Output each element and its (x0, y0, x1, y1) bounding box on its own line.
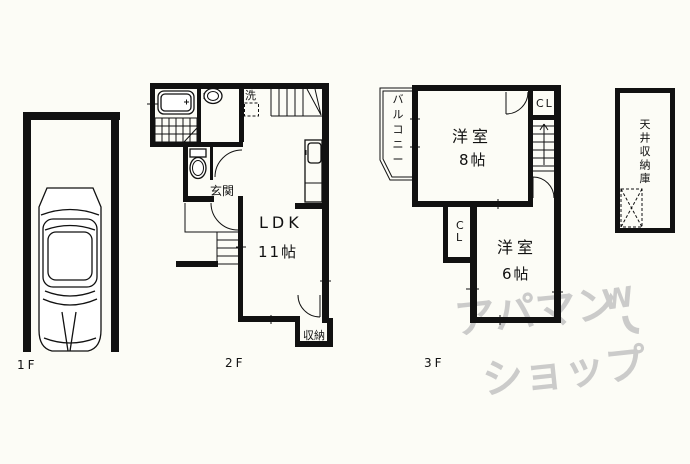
floorplan-image: アパマン ショップ W 1F (0, 0, 690, 460)
watermark-logo-tail (625, 316, 639, 331)
floorplan-svg: アパマン ショップ W 1F (0, 0, 690, 460)
door-arc-room6 (533, 177, 554, 198)
watermark-line2: ショップ (480, 339, 648, 404)
watermark-logo-icon: W (600, 280, 635, 317)
stairs-icon-3f (533, 124, 554, 171)
room6-label: 洋室 (497, 238, 537, 257)
room8-label: 洋室 (452, 127, 492, 146)
floor2-label: 2F (225, 356, 246, 370)
washbasin-icon (204, 89, 222, 104)
bathtub-icon (158, 91, 194, 114)
kitchen-icon (305, 140, 322, 202)
stairs-icon-2f (271, 89, 322, 116)
balcony-label: バルコニー (393, 93, 404, 166)
attic-storage: 天井収納庫 (618, 91, 673, 231)
room6-size-label: 6帖 (502, 265, 531, 283)
attic-ladder-icon (621, 189, 642, 227)
ldk-size-label: 11帖 (258, 243, 298, 261)
floor-1f: 1F (17, 112, 120, 372)
door-arc-hall (215, 150, 242, 177)
floor-2f: 洗 LDK 11帖 玄関 収納 2F (147, 83, 333, 370)
entrance-porch (185, 203, 241, 264)
laundry-label: 洗 (245, 89, 256, 102)
car-icon (39, 188, 101, 351)
floor1-label: 1F (17, 358, 38, 372)
watermark: アパマン ショップ W (452, 279, 648, 404)
attic-label: 天井収納庫 (640, 118, 651, 185)
toilet-icon (190, 149, 206, 179)
bathroom-tile-floor (155, 118, 197, 142)
floor3-label: 3F (424, 356, 445, 370)
room8-size-label: 8帖 (459, 151, 488, 169)
ldk-label: LDK (259, 213, 303, 232)
closet-top-label: CL (536, 97, 554, 110)
storage-label: 収納 (303, 329, 325, 342)
closet-side-label: CL (456, 219, 466, 244)
washer-space (245, 103, 259, 116)
door-arc-room8 (506, 92, 528, 114)
door-arc-storage (298, 295, 320, 317)
entrance-label: 玄関 (210, 183, 234, 198)
